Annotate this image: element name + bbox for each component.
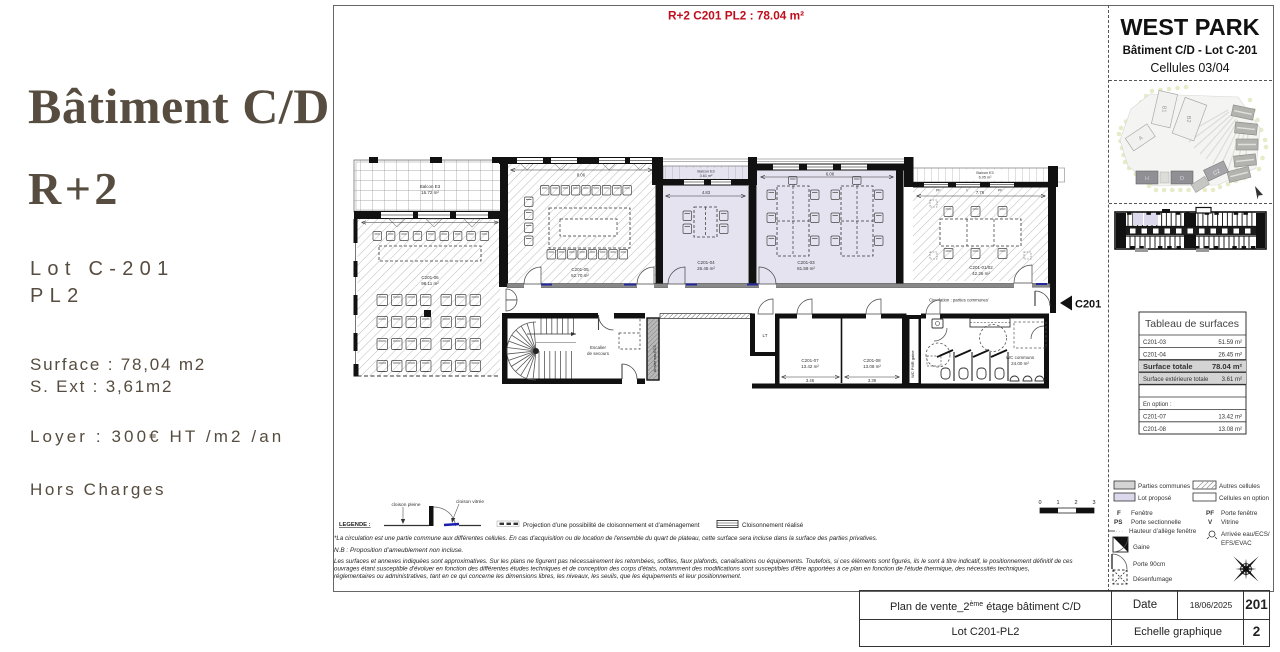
svg-text:de secours: de secours: [587, 351, 610, 356]
svg-text:D: D: [1180, 176, 1184, 182]
svg-text:C201-01/02: C201-01/02: [969, 265, 993, 270]
svg-text:C201-03: C201-03: [797, 260, 815, 265]
svg-text:52.70 m²: 52.70 m²: [571, 273, 589, 278]
svg-text:C201-04: C201-04: [697, 260, 715, 265]
svg-text:B2: B2: [1185, 116, 1191, 123]
svg-text:V: V: [1208, 519, 1213, 526]
svg-text:Surface totale: Surface totale: [1143, 362, 1193, 371]
svg-text:Escalier: Escalier: [590, 345, 607, 350]
svg-text:98.11 m²: 98.11 m²: [421, 281, 439, 286]
svg-text:26.45 m²: 26.45 m²: [697, 266, 715, 271]
svg-text:Lot proposé: Lot proposé: [1138, 495, 1172, 502]
svg-text:13.42 m²: 13.42 m²: [801, 364, 819, 369]
svg-text:3: 3: [1092, 500, 1095, 506]
svg-text:3.61 m²: 3.61 m²: [1222, 377, 1242, 383]
svg-text:PS: PS: [1114, 519, 1122, 526]
svg-text:Cellules en option: Cellules en option: [1219, 495, 1270, 502]
svg-text:3.61 m²: 3.61 m²: [700, 174, 714, 178]
svg-text:C201-03: C201-03: [1143, 340, 1167, 346]
svg-text:N.B : Proposition d’ameublemen: N.B : Proposition d’ameublement non incl…: [334, 547, 463, 554]
svg-text:6.05 m²: 6.05 m²: [979, 176, 993, 180]
svg-text:cloison pleine: cloison pleine: [391, 502, 420, 508]
svg-text:F: F: [1117, 510, 1121, 517]
svg-text:Autres cellules: Autres cellules: [1219, 483, 1260, 490]
svg-text:Balcon E3: Balcon E3: [697, 170, 714, 174]
svg-text:42.26 m²: 42.26 m²: [972, 271, 990, 276]
svg-text:· · ·: · · ·: [1116, 529, 1123, 534]
svg-text:C201: C201: [1075, 299, 1101, 311]
svg-text:Balcon E3: Balcon E3: [420, 184, 441, 189]
svg-text:Porte sectionnelle: Porte sectionnelle: [1131, 519, 1182, 526]
svg-text:24.00 m²: 24.00 m²: [1011, 361, 1029, 366]
svg-text:13.08 m²: 13.08 m²: [863, 364, 881, 369]
svg-text:Fenêtre: Fenêtre: [1131, 510, 1153, 517]
svg-text:Surface extérieure totale: Surface extérieure totale: [1143, 377, 1209, 383]
svg-text:Balcon E3: Balcon E3: [976, 171, 993, 175]
svg-text:C201-07: C201-07: [1143, 414, 1167, 420]
svg-text:EFS/EVAC: EFS/EVAC: [1221, 540, 1252, 547]
svg-text:C201-08: C201-08: [863, 358, 881, 363]
svg-text:0: 0: [1038, 500, 1041, 506]
svg-text:Hauteur d’allège fenêtre: Hauteur d’allège fenêtre: [1129, 528, 1197, 535]
svg-text:Porte 90cm: Porte 90cm: [1133, 561, 1165, 568]
svg-text:H: H: [1145, 176, 1149, 182]
svg-text:Projection d’une possibilité d: Projection d’une possibilité de cloisonn…: [523, 522, 700, 529]
svg-text:R+2 C201 PL2 : 78.04 m²: R+2 C201 PL2 : 78.04 m²: [668, 9, 804, 23]
svg-text:4.83: 4.83: [702, 190, 711, 195]
svg-text:PF: PF: [1206, 510, 1214, 517]
svg-text:1: 1: [1056, 500, 1059, 506]
svg-text:3.46: 3.46: [806, 378, 815, 383]
svg-text:Parties communes: Parties communes: [1138, 483, 1190, 490]
svg-text:Cloisonnement réalisé: Cloisonnement réalisé: [742, 522, 804, 529]
svg-text:WC communs: WC communs: [1006, 355, 1035, 360]
svg-text:2: 2: [1074, 500, 1077, 506]
svg-text:C201-07: C201-07: [801, 358, 819, 363]
svg-text:13.42 m²: 13.42 m²: [1218, 414, 1242, 420]
svg-text:Désenfumage: Désenfumage: [1133, 576, 1173, 583]
svg-text:Arrivée eau ECS: Arrivée eau ECS: [653, 345, 657, 372]
svg-text:81.59 m²: 81.59 m²: [797, 266, 815, 271]
svg-text:C201-06: C201-06: [421, 275, 439, 280]
svg-text:C201-05: C201-05: [571, 267, 589, 272]
svg-text:C201-04: C201-04: [1143, 352, 1167, 358]
svg-text:Les surfaces et annexes indiqu: Les surfaces et annexes indiquées sont a…: [334, 558, 1073, 565]
svg-text:7.76: 7.76: [976, 190, 985, 195]
svg-text:6.06: 6.06: [826, 172, 835, 177]
svg-text:Vitrine: Vitrine: [1221, 519, 1239, 526]
svg-text:B1: B1: [1160, 106, 1166, 113]
svg-text:16.72 m²: 16.72 m²: [421, 190, 439, 195]
svg-text:13.08 m²: 13.08 m²: [1218, 427, 1242, 433]
svg-text:*La circulation est une partie: *La circulation est une partie commune a…: [334, 535, 877, 542]
svg-text:Gaine: Gaine: [1133, 544, 1150, 551]
svg-text:3.39: 3.39: [868, 378, 877, 383]
svg-text:LEGENDE :: LEGENDE :: [339, 522, 371, 528]
svg-text:51.59 m²: 51.59 m²: [1218, 340, 1242, 346]
svg-text:78.04 m²: 78.04 m²: [1212, 362, 1243, 371]
svg-text:8.06: 8.06: [577, 173, 586, 178]
svg-text:cloison vitrée: cloison vitrée: [456, 499, 484, 505]
svg-text:26.45 m²: 26.45 m²: [1218, 352, 1242, 358]
svg-text:réglementaires ou administrati: réglementaires ou administratives, tant …: [334, 573, 742, 580]
svg-text:Porte fenêtre: Porte fenêtre: [1221, 510, 1258, 517]
svg-text:ouvrages étant susceptible d'é: ouvrages étant susceptible d'évoluer en …: [334, 566, 1029, 573]
svg-text:C201-08: C201-08: [1143, 427, 1167, 433]
svg-text:LT: LT: [763, 333, 768, 338]
svg-text:Arrivée eau/ECS/: Arrivée eau/ECS/: [1221, 531, 1270, 538]
svg-text:En option :: En option :: [1143, 402, 1172, 408]
svg-text:WC PMR gaine: WC PMR gaine: [910, 350, 915, 378]
svg-text:Tableau de surfaces: Tableau de surfaces: [1145, 318, 1239, 330]
